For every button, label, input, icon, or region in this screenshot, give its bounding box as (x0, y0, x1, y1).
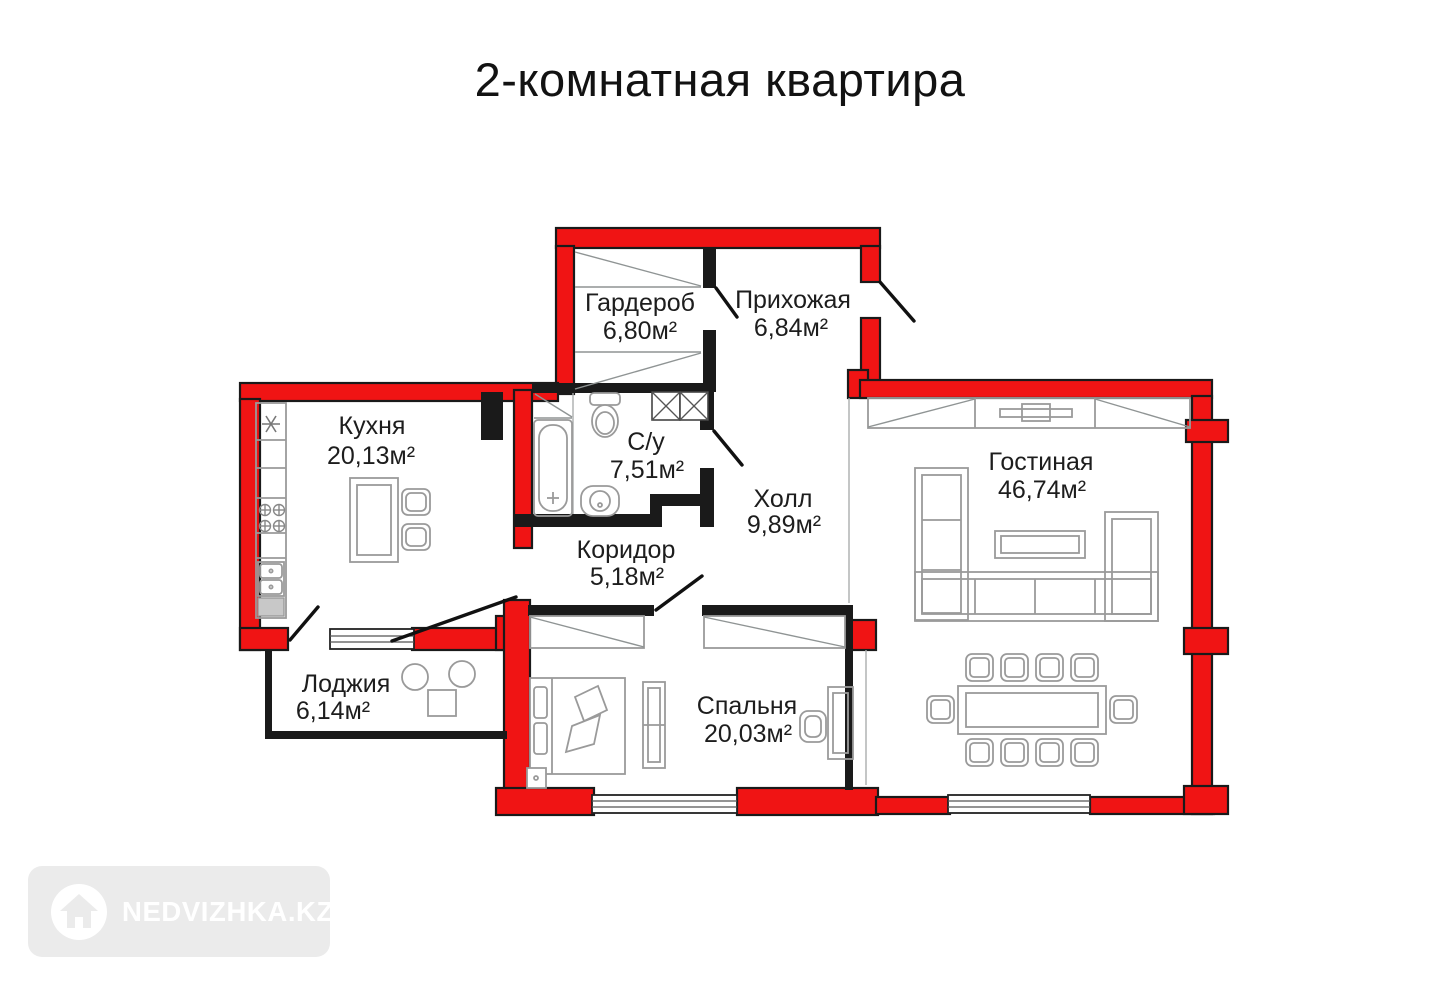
room-area-bathroom: 7,51м² (610, 456, 684, 484)
bed (530, 678, 625, 774)
room-label-hall: Холл (754, 485, 813, 513)
coffee-table (995, 531, 1085, 558)
dresser (643, 682, 665, 768)
wardrobe-door (716, 288, 737, 317)
room-area-bedroom: 20,03м² (704, 720, 792, 748)
living-room-window (948, 795, 1090, 813)
stove (259, 504, 285, 532)
watermark-badge: NEDVIZHKA.KZ (28, 866, 330, 957)
loggia-door (290, 607, 318, 640)
room-area-living: 46,74м² (998, 476, 1086, 504)
floorplan-drawing: Гардероб 6,80м² Прихожая 6,84м² Кухня 20… (0, 0, 1440, 989)
house-icon (50, 883, 108, 941)
room-label-loggia: Лоджия (302, 670, 391, 698)
room-area-entry: 6,84м² (754, 314, 828, 342)
room-area-corridor: 5,18м² (590, 563, 664, 591)
bedside-table (527, 768, 546, 788)
bathtub (534, 420, 572, 516)
bathroom-door (714, 431, 742, 465)
dining-set (927, 654, 1137, 766)
tv-unit (1000, 409, 1072, 417)
fridge-snowflake-icon (262, 416, 280, 432)
room-label-entry: Прихожая (735, 286, 851, 314)
room-label-corridor: Коридор (577, 536, 676, 564)
watermark-brand: NEDVIZHKA.KZ (122, 896, 334, 928)
bedroom-window (592, 795, 737, 813)
room-label-bedroom: Спальня (697, 692, 797, 720)
entrance-door (880, 282, 914, 321)
room-area-loggia: 6,14м² (296, 697, 370, 725)
toilet (590, 393, 620, 437)
room-area-hall: 9,89м² (747, 511, 821, 539)
room-label-wardrobe: Гардероб (585, 289, 695, 317)
kitchen-table (350, 478, 430, 562)
washbasin (581, 486, 619, 516)
builtin-wardrobe (868, 398, 1190, 428)
vent-shaft (652, 392, 708, 420)
room-label-living: Гостиная (989, 448, 1094, 476)
room-label-kitchen: Кухня (339, 412, 406, 440)
room-label-bathroom: С/у (627, 428, 665, 456)
floorplan-page: 2-комнатная квартира (0, 0, 1440, 989)
room-area-wardrobe: 6,80м² (603, 317, 677, 345)
loggia-furniture (402, 661, 475, 716)
room-area-kitchen: 20,13м² (327, 442, 415, 470)
kitchen-sink (258, 562, 284, 616)
